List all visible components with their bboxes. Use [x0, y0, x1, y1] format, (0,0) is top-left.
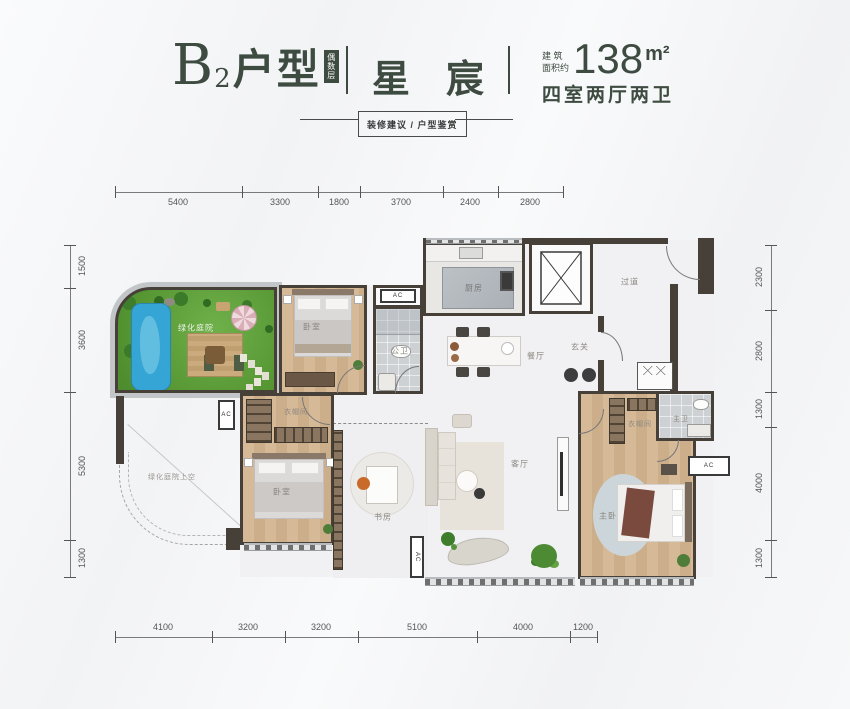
closet-left-label: 衣帽间: [284, 407, 308, 417]
tick: [318, 186, 319, 198]
banner-line-right: [455, 119, 513, 120]
dim-line-left: [70, 245, 71, 577]
bed-pillow: [672, 515, 683, 537]
plant: [323, 524, 333, 534]
master-dresser: [661, 464, 677, 475]
nightstand: [283, 295, 292, 304]
tick: [765, 392, 777, 393]
ac-label: AC: [414, 552, 420, 562]
dim-right-4: 4000: [754, 473, 764, 493]
dining-chair: [456, 327, 469, 337]
banner-box: 装修建议 / 户型鉴赏: [358, 111, 467, 137]
cabinet-hatch: [642, 366, 668, 375]
master-bed: [617, 484, 685, 542]
tv-cabinet: [557, 437, 569, 511]
dim-bottom-4: 5100: [407, 622, 427, 632]
tick: [570, 631, 571, 643]
ac-unit-right: AC: [688, 456, 730, 476]
dim-top-3: 1800: [329, 197, 349, 207]
area-unit: m²: [645, 44, 669, 64]
tick: [765, 540, 777, 541]
foyer-stool: [564, 368, 578, 382]
side-table: [474, 488, 485, 499]
stove: [500, 271, 514, 291]
study-label: 书房: [374, 512, 392, 523]
dim-right-5: 1300: [754, 548, 764, 568]
master-bedroom-label: 主卧: [599, 511, 617, 522]
wall-foyer-2: [598, 360, 604, 394]
dim-bottom-3: 3200: [311, 622, 331, 632]
bed-throw: [621, 487, 655, 538]
dim-right-3: 1300: [754, 399, 764, 419]
tick: [477, 631, 478, 643]
dim-top-4: 3700: [391, 197, 411, 207]
hallway-label: 过道: [621, 277, 639, 288]
dining-plate: [451, 354, 459, 362]
garden-lounge-chair: [216, 302, 230, 311]
tick: [765, 310, 777, 311]
foyer-stool: [582, 368, 596, 382]
header-divider-1: [346, 46, 348, 94]
unit-title: B2户型 偶数层: [172, 34, 339, 98]
area-label: 建 筑 面积约: [542, 50, 569, 74]
dim-top-5: 2400: [460, 197, 480, 207]
banner-line-left: [300, 119, 358, 120]
kitchen-label: 厨房: [465, 283, 483, 294]
tick: [64, 245, 76, 246]
garden-deck: [187, 333, 243, 377]
dim-right-1: 2300: [754, 267, 764, 287]
dim-line-top: [115, 192, 564, 193]
nightstand: [244, 458, 253, 467]
open-air-label: 绿化庭院上空: [148, 472, 196, 482]
ac-unit-top: AC: [380, 289, 416, 303]
garden-table: [205, 346, 225, 364]
ac-unit-bottom: AC: [410, 536, 424, 578]
dim-line-bottom: [115, 637, 598, 638]
elevator-icon: [540, 251, 582, 305]
foyer-label: 玄关: [571, 342, 589, 353]
master-wardrobe-top: [627, 398, 659, 411]
dining-chair: [477, 367, 490, 377]
dim-left-2: 3600: [77, 330, 87, 350]
study-desk: [366, 466, 398, 504]
tick: [212, 631, 213, 643]
dim-bottom-1: 4100: [153, 622, 173, 632]
sofa-back: [425, 428, 438, 506]
tick: [64, 392, 76, 393]
master-bed-headboard: [685, 482, 692, 542]
master-wardrobe-left: [609, 398, 625, 444]
ac-label: AC: [393, 293, 403, 299]
ac-unit-left: AC: [218, 400, 235, 430]
dim-left-4: 1300: [77, 548, 87, 568]
tick: [64, 288, 76, 289]
dining-label: 餐厅: [527, 351, 545, 362]
wardrobe-top: [274, 427, 328, 443]
pool-ripple: [140, 316, 160, 374]
plant: [441, 532, 455, 546]
tick: [765, 427, 777, 428]
layout-summary: 四室两厅两卫: [542, 80, 722, 107]
banner-text: 装修建议 / 户型鉴赏: [367, 120, 458, 130]
wall-entry-jamb: [698, 238, 714, 294]
sofa-seats: [438, 432, 456, 500]
wall-foyer-1: [598, 316, 604, 332]
bed-pillow: [672, 489, 683, 511]
dim-bottom-6: 1200: [573, 622, 593, 632]
tick: [242, 186, 243, 198]
wardrobe-left: [246, 399, 272, 443]
tick: [285, 631, 286, 643]
hall-cabinet: [637, 362, 673, 390]
dim-top-1: 5400: [168, 197, 188, 207]
garden-rock: [164, 298, 175, 306]
kitchen: [423, 242, 525, 316]
garden-umbrella: [231, 305, 257, 331]
unit-number: 2: [214, 66, 231, 92]
bedroom-left-label: 卧室: [273, 487, 291, 498]
master-bath-label: 主卫: [673, 414, 689, 424]
study-bookshelf: [333, 430, 343, 570]
area-value: 138: [573, 40, 643, 78]
shower-area: [376, 309, 420, 335]
bed-runner: [295, 344, 351, 353]
nightstand: [354, 295, 363, 304]
bed-pillow: [291, 462, 319, 474]
garden-label: 绿化庭院: [178, 323, 214, 334]
window-master-south: [580, 577, 694, 586]
dim-bottom-5: 4000: [513, 622, 533, 632]
tick: [765, 577, 777, 578]
dining-bowl: [501, 342, 514, 355]
public-bath-label: 公卫: [391, 346, 409, 357]
plant: [677, 554, 690, 567]
bed-pillow: [325, 298, 349, 310]
unit-letter: B: [172, 38, 213, 94]
garden-courtyard: [115, 287, 277, 393]
wall-bottom-left-stub: [226, 528, 240, 550]
project-name: 星宸: [372, 48, 520, 103]
bed-pillow: [297, 298, 321, 310]
armchair: [452, 414, 472, 428]
bath-vanity: [687, 424, 711, 437]
window-bedroom-left-south: [244, 543, 332, 551]
unit-word: 户型: [233, 36, 321, 97]
bedroom-top-label: 卧室: [303, 322, 321, 333]
tick: [360, 186, 361, 198]
area-block: 建 筑 面积约 138 m² 四室两厅两卫: [542, 40, 722, 107]
master-closet-label: 衣帽间: [628, 419, 652, 429]
tick: [563, 186, 564, 198]
dim-right-2: 2800: [754, 341, 764, 361]
garden-stepping-stones: [240, 354, 247, 362]
dining-chair: [456, 367, 469, 377]
header-divider-2: [508, 46, 510, 94]
tick: [115, 631, 116, 643]
elevator-shaft: [529, 242, 593, 314]
plant-cluster: [531, 544, 557, 568]
window-living-south: [425, 577, 575, 586]
dim-top-2: 3300: [270, 197, 290, 207]
dining-plate: [450, 342, 459, 351]
garden-pool: [131, 303, 171, 391]
dim-top-6: 2800: [520, 197, 540, 207]
dining-chair: [477, 327, 490, 337]
tick: [498, 186, 499, 198]
dim-line-right: [771, 245, 772, 577]
header: B2户型 偶数层 星宸 建 筑 面积约 138 m² 四室两厅两卫 装修建议 /…: [0, 0, 850, 140]
toilet: [693, 399, 709, 410]
ac-label: AC: [221, 412, 231, 418]
window-kitchen-top: [426, 238, 522, 244]
tick: [115, 186, 116, 198]
kitchen-sink: [459, 247, 483, 259]
floor-badge: 偶数层: [324, 50, 339, 83]
tick: [358, 631, 359, 643]
dim-left-1: 1500: [77, 256, 87, 276]
wall-left-stub: [116, 396, 124, 464]
dresser: [285, 372, 335, 387]
tick: [64, 577, 76, 578]
bath-vanity: [378, 373, 396, 391]
dim-left-3: 5300: [77, 456, 87, 476]
bed-pillow: [258, 462, 286, 474]
living-label: 客厅: [511, 459, 529, 470]
tick: [64, 540, 76, 541]
tick: [597, 631, 598, 643]
dim-bottom-2: 3200: [238, 622, 258, 632]
tick: [443, 186, 444, 198]
tick: [765, 245, 777, 246]
study-chair: [357, 477, 370, 490]
tv-screen: [560, 452, 563, 496]
ac-label: AC: [704, 463, 714, 469]
